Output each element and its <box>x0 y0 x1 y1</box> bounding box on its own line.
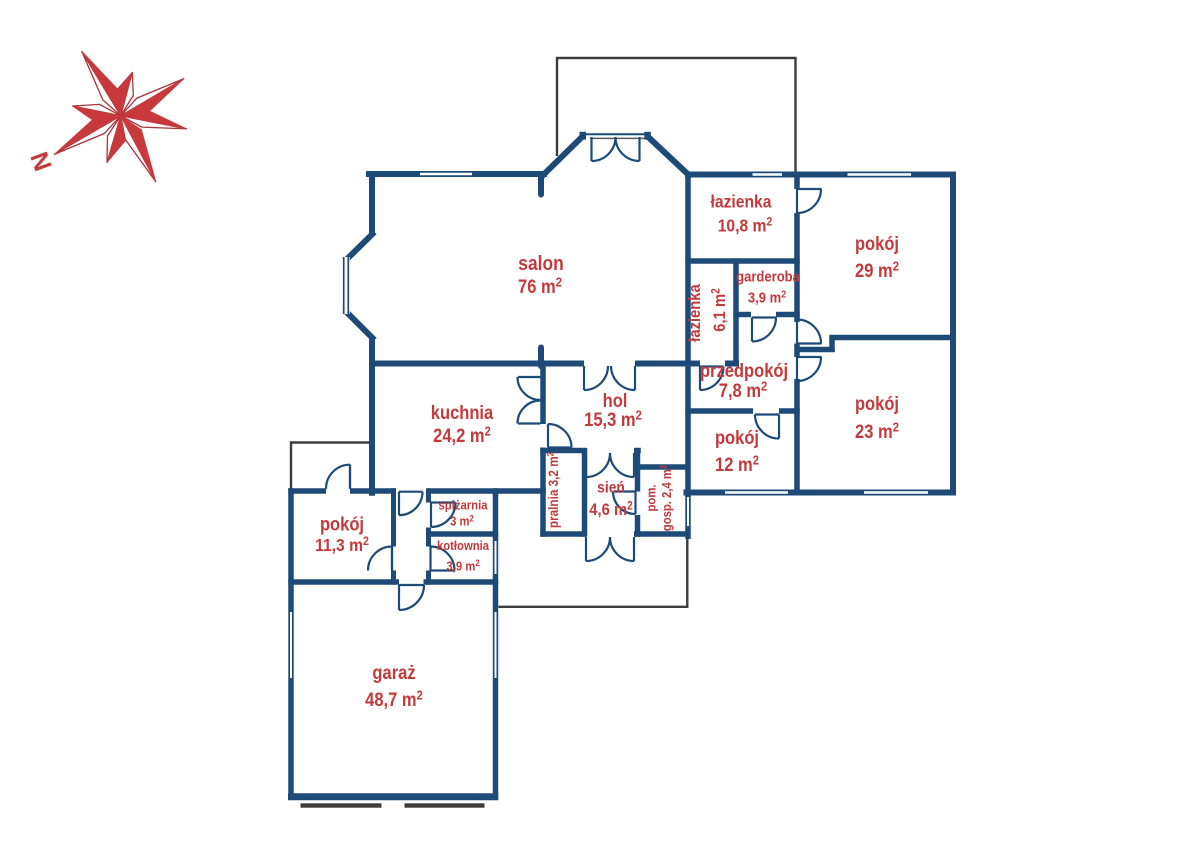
svg-text:łazienka: łazienka <box>686 284 704 342</box>
svg-text:pokój: pokój <box>715 427 759 448</box>
svg-text:3,9 m2: 3,9 m2 <box>748 289 786 306</box>
svg-text:garaż: garaż <box>372 662 415 683</box>
svg-text:spiżarnia: spiżarnia <box>439 498 488 513</box>
svg-text:przedpokój: przedpokój <box>700 360 788 381</box>
svg-text:29 m2: 29 m2 <box>855 259 899 281</box>
svg-text:7,8 m2: 7,8 m2 <box>719 379 768 401</box>
svg-text:salon: salon <box>518 252 563 274</box>
svg-text:10,8 m2: 10,8 m2 <box>718 215 773 235</box>
svg-text:pokój: pokój <box>320 513 364 534</box>
svg-text:23 m2: 23 m2 <box>855 420 899 442</box>
svg-text:kuchnia: kuchnia <box>431 402 494 423</box>
svg-text:24,2 m2: 24,2 m2 <box>433 424 491 446</box>
svg-text:kotłownia: kotłownia <box>437 538 489 553</box>
svg-text:garderoba: garderoba <box>736 268 800 285</box>
svg-text:15,3 m2: 15,3 m2 <box>584 408 642 430</box>
svg-text:11,3 m2: 11,3 m2 <box>315 535 369 555</box>
svg-text:pom.: pom. <box>644 485 659 512</box>
svg-text:48,7 m2: 48,7 m2 <box>365 688 423 710</box>
svg-text:łazienka: łazienka <box>711 191 772 211</box>
svg-text:gosp. 2,4 m2: gosp. 2,4 m2 <box>659 464 674 531</box>
svg-text:pralnia 3,2 m2: pralnia 3,2 m2 <box>545 452 561 528</box>
svg-text:sień: sień <box>597 478 625 496</box>
svg-text:76 m2: 76 m2 <box>518 275 562 297</box>
svg-text:pokój: pokój <box>855 393 899 414</box>
svg-text:12 m2: 12 m2 <box>715 453 759 475</box>
svg-text:3,9 m2: 3,9 m2 <box>446 559 480 574</box>
svg-text:6,1 m2: 6,1 m2 <box>710 288 729 331</box>
svg-text:4,6 m2: 4,6 m2 <box>589 500 632 519</box>
svg-text:pokój: pokój <box>855 233 899 254</box>
